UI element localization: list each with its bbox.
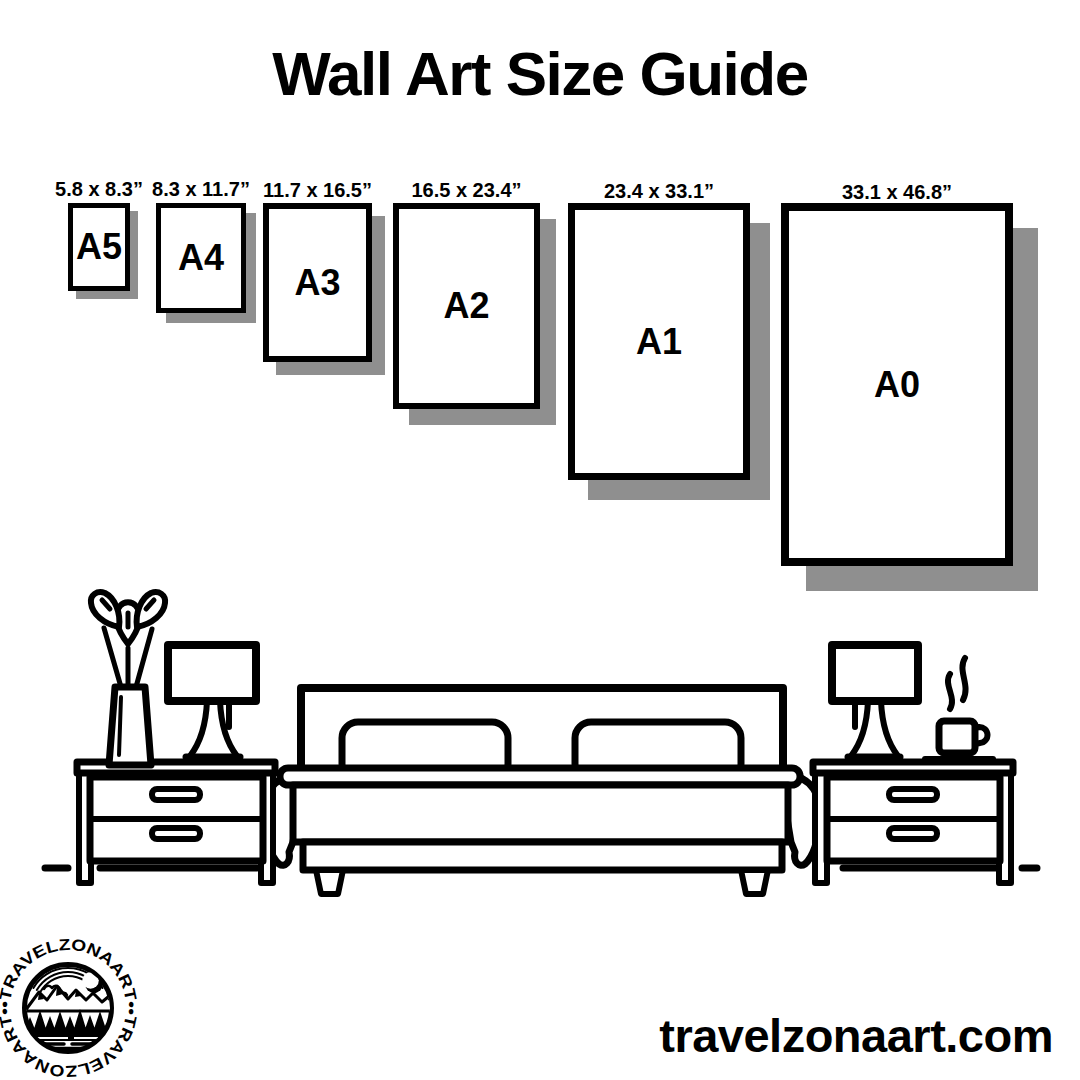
bedroom-illustration — [0, 0, 1080, 1080]
drawer-handle — [152, 789, 200, 800]
duvet — [293, 785, 788, 842]
steam — [948, 658, 966, 709]
lamp-shade — [168, 645, 256, 701]
drawer-handle — [152, 828, 200, 839]
lamp-right — [832, 645, 918, 757]
website-url: travelzonaart.com — [659, 1008, 1053, 1063]
vase-highlight — [119, 697, 121, 755]
nightstand-right-top — [813, 762, 1013, 773]
lamp-shade — [832, 645, 918, 701]
drawer-handle — [889, 789, 937, 800]
vase — [109, 687, 151, 765]
bed-leg-left — [316, 870, 343, 894]
lamp-stem — [851, 701, 898, 756]
leaf-right — [137, 592, 165, 627]
cup-body — [939, 721, 975, 753]
coffee-cup — [925, 658, 993, 759]
bed — [264, 688, 820, 894]
leaf-left — [91, 592, 119, 627]
bed-leg-right — [741, 870, 768, 894]
bed-base — [303, 842, 782, 870]
vase-with-flowers — [91, 592, 165, 765]
drawer-handle — [889, 828, 937, 839]
brand-logo: •TRAVELZONAART••TRAVELZONAART• — [0, 925, 150, 1080]
lamp-stem — [190, 701, 237, 756]
lamp-left — [168, 645, 256, 757]
